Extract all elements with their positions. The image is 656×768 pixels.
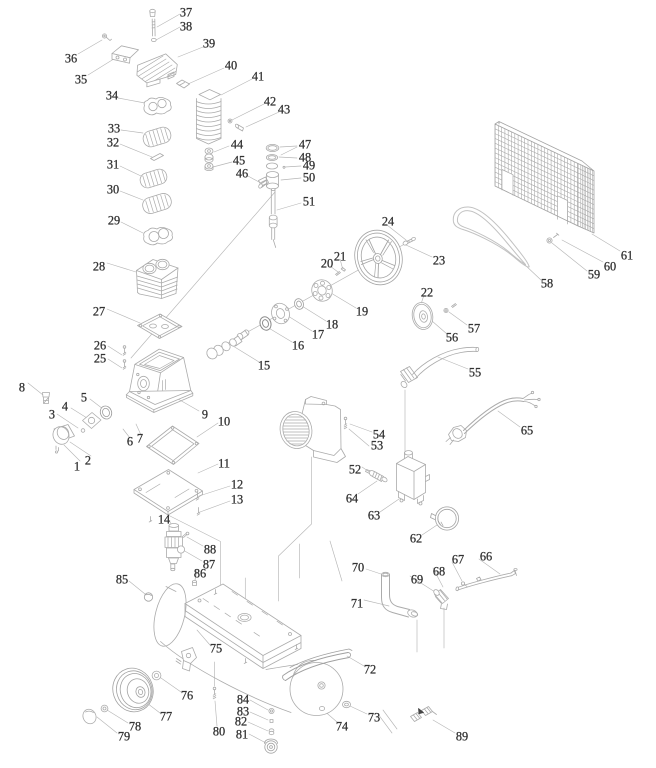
svg-text:30: 30 <box>107 183 119 197</box>
svg-text:85: 85 <box>116 573 128 587</box>
svg-text:56: 56 <box>446 331 458 345</box>
svg-text:10: 10 <box>218 415 230 429</box>
svg-text:69: 69 <box>411 573 423 587</box>
svg-text:20: 20 <box>321 257 333 271</box>
svg-text:41: 41 <box>252 70 264 84</box>
svg-text:2: 2 <box>85 454 91 468</box>
svg-text:66: 66 <box>480 550 492 564</box>
svg-text:16: 16 <box>292 339 304 353</box>
svg-text:32: 32 <box>107 136 119 150</box>
svg-text:17: 17 <box>312 328 324 342</box>
svg-text:45: 45 <box>233 154 245 168</box>
svg-text:89: 89 <box>456 730 468 744</box>
svg-text:26: 26 <box>94 339 106 353</box>
svg-text:61: 61 <box>621 249 633 263</box>
svg-text:68: 68 <box>433 565 445 579</box>
svg-text:65: 65 <box>521 424 533 438</box>
svg-text:52: 52 <box>349 463 361 477</box>
svg-text:67: 67 <box>452 553 464 567</box>
svg-text:71: 71 <box>351 597 363 611</box>
svg-text:15: 15 <box>258 359 270 373</box>
svg-text:18: 18 <box>326 318 338 332</box>
svg-text:21: 21 <box>334 250 346 264</box>
svg-text:43: 43 <box>278 103 290 117</box>
svg-text:88: 88 <box>204 543 216 557</box>
svg-text:9: 9 <box>202 408 208 422</box>
svg-text:79: 79 <box>118 730 130 744</box>
svg-text:3: 3 <box>49 408 55 422</box>
svg-text:86: 86 <box>194 567 206 581</box>
svg-text:60: 60 <box>604 260 616 274</box>
svg-text:7: 7 <box>137 432 143 446</box>
svg-text:44: 44 <box>231 138 243 152</box>
svg-text:64: 64 <box>346 492 358 506</box>
svg-text:25: 25 <box>94 352 106 366</box>
svg-text:34: 34 <box>106 89 118 103</box>
svg-text:4: 4 <box>62 400 68 414</box>
svg-text:23: 23 <box>433 254 445 268</box>
svg-text:29: 29 <box>108 214 120 228</box>
svg-text:53: 53 <box>371 439 383 453</box>
svg-text:62: 62 <box>410 532 422 546</box>
svg-text:51: 51 <box>303 195 315 209</box>
svg-text:63: 63 <box>368 509 380 523</box>
svg-text:6: 6 <box>127 435 133 449</box>
svg-text:31: 31 <box>107 158 119 172</box>
svg-text:74: 74 <box>336 720 348 734</box>
svg-text:36: 36 <box>65 52 77 66</box>
svg-text:82: 82 <box>235 715 247 729</box>
svg-text:1: 1 <box>74 460 80 474</box>
svg-text:24: 24 <box>382 215 394 229</box>
svg-text:39: 39 <box>203 37 215 51</box>
svg-text:77: 77 <box>160 710 172 724</box>
svg-text:73: 73 <box>368 711 380 725</box>
svg-text:55: 55 <box>469 366 481 380</box>
svg-text:35: 35 <box>75 73 87 87</box>
svg-text:14: 14 <box>158 513 170 527</box>
svg-text:13: 13 <box>231 493 243 507</box>
svg-text:40: 40 <box>225 59 237 73</box>
svg-text:81: 81 <box>236 728 248 742</box>
svg-text:33: 33 <box>108 122 120 136</box>
svg-text:37: 37 <box>180 6 192 20</box>
svg-text:28: 28 <box>93 260 105 274</box>
svg-text:46: 46 <box>236 167 248 181</box>
svg-text:58: 58 <box>541 277 553 291</box>
svg-text:12: 12 <box>231 478 243 492</box>
svg-text:59: 59 <box>588 268 600 282</box>
svg-text:50: 50 <box>303 171 315 185</box>
svg-text:57: 57 <box>468 322 480 336</box>
svg-text:42: 42 <box>264 95 276 109</box>
svg-text:47: 47 <box>299 138 311 152</box>
svg-text:11: 11 <box>218 457 230 471</box>
svg-text:19: 19 <box>356 305 368 319</box>
svg-text:38: 38 <box>180 20 192 34</box>
svg-text:22: 22 <box>421 286 433 300</box>
svg-text:75: 75 <box>210 642 222 656</box>
svg-text:27: 27 <box>93 305 105 319</box>
svg-text:8: 8 <box>19 381 25 395</box>
svg-text:70: 70 <box>352 561 364 575</box>
svg-text:72: 72 <box>364 663 376 677</box>
svg-text:5: 5 <box>81 391 87 405</box>
svg-text:78: 78 <box>129 720 141 734</box>
svg-text:76: 76 <box>181 689 193 703</box>
svg-text:80: 80 <box>213 725 225 739</box>
